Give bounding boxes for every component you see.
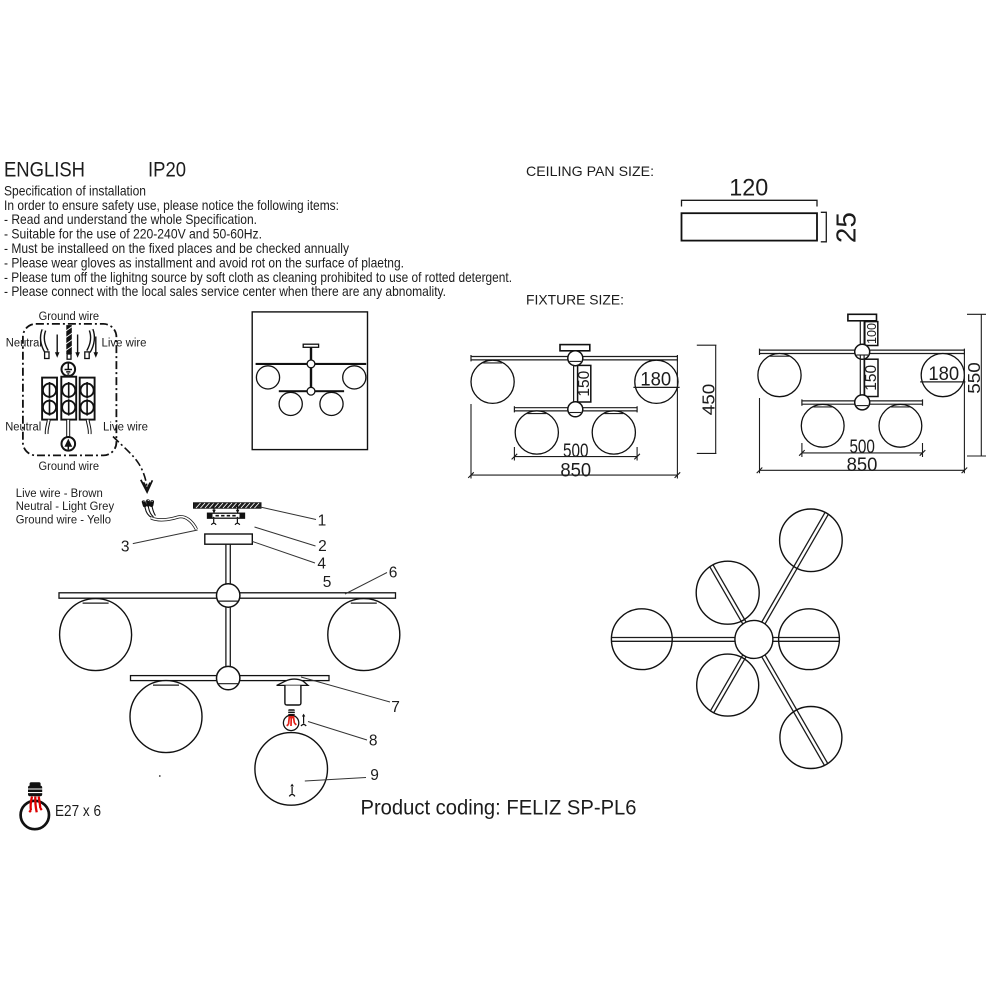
- svg-text:4: 4: [317, 556, 326, 573]
- svg-text:Neutral: Neutral: [6, 338, 42, 350]
- svg-text:E27 x 6: E27 x 6: [55, 803, 101, 820]
- svg-text:2: 2: [318, 538, 327, 555]
- svg-text:180: 180: [928, 363, 959, 385]
- svg-text:550: 550: [964, 362, 984, 394]
- svg-text:850: 850: [560, 460, 591, 482]
- svg-text:Ground wire: Ground wire: [39, 311, 100, 323]
- svg-text:120: 120: [729, 175, 768, 202]
- svg-text:Neutral - Light Grey: Neutral - Light Grey: [16, 499, 115, 513]
- svg-text:1: 1: [318, 512, 327, 529]
- svg-text:8: 8: [369, 733, 378, 750]
- svg-text:6: 6: [389, 564, 398, 581]
- svg-text:CEILING PAN SIZE:: CEILING PAN SIZE:: [526, 163, 654, 179]
- svg-text:150: 150: [576, 370, 593, 396]
- svg-text:- Please connect with the loca: - Please connect with the local sales se…: [4, 283, 446, 299]
- svg-text:FIXTURE SIZE:: FIXTURE SIZE:: [526, 291, 624, 307]
- svg-text:IP20: IP20: [148, 158, 186, 181]
- svg-text:Ground wire: Ground wire: [39, 461, 100, 473]
- svg-text:9: 9: [370, 767, 379, 784]
- svg-text:5: 5: [323, 574, 332, 591]
- svg-text:100: 100: [864, 323, 879, 344]
- svg-text:150: 150: [863, 364, 880, 390]
- svg-text:Product coding: FELIZ SP-PL6: Product coding: FELIZ SP-PL6: [361, 797, 637, 820]
- svg-text:7: 7: [391, 699, 400, 716]
- svg-text:3: 3: [121, 538, 130, 555]
- svg-text:25: 25: [831, 212, 862, 243]
- svg-text:450: 450: [699, 383, 719, 415]
- svg-text:Live wire: Live wire: [103, 422, 148, 434]
- svg-text:Ground wire - Yello: Ground wire - Yello: [16, 513, 111, 527]
- svg-text:Neutral: Neutral: [5, 422, 41, 434]
- svg-text:Live wire: Live wire: [102, 338, 147, 350]
- svg-text:ENGLISH: ENGLISH: [4, 158, 85, 181]
- svg-text:500: 500: [563, 440, 589, 462]
- svg-text:Live wire - Brown: Live wire - Brown: [16, 486, 103, 500]
- svg-text:180: 180: [640, 369, 671, 391]
- svg-text:850: 850: [847, 454, 878, 476]
